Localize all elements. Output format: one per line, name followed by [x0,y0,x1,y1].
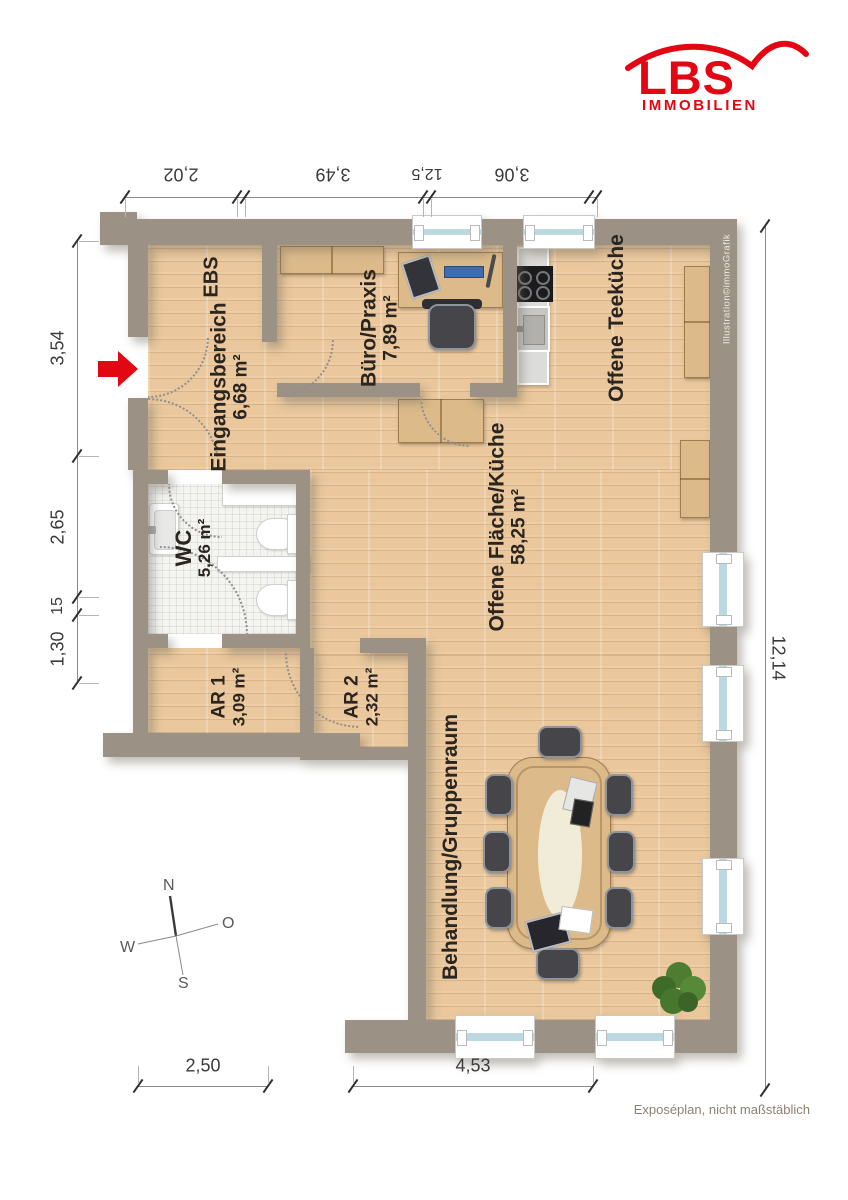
room-name: Büro/Praxis [359,269,381,387]
room-name: AR 1 [210,675,230,718]
wall-bottom [345,1020,737,1053]
room-area: 2,32 m² [364,668,382,727]
dim-value-bottom: 2,50 [185,1056,220,1077]
dim-value-left: 15 [49,597,67,615]
window [412,215,482,249]
compass-w: W [120,939,136,956]
arrow-head [118,351,138,387]
compass-o: O [222,915,234,932]
room-name: EBS [202,256,223,297]
room-area: 3,09 m² [231,668,249,727]
room-label-buero-praxis: Büro/Praxis 7,89 m² [359,269,402,387]
dim-value-top: 3,49 [315,164,350,185]
floorplan-page: LBS IMMOBILIEN [0,0,848,1200]
dim-value-left: 2,65 [48,509,69,544]
dim-ext [353,1066,354,1084]
room-name: Behandlung/Gruppenraum [440,714,462,980]
room-name: Eingangsbereich [209,302,231,471]
dim-line-top [125,197,597,198]
room-label-ar1: AR 1 3,09 m² [210,668,249,727]
arrow-shaft [98,361,118,377]
dim-ext [593,1066,594,1084]
dim-ext [125,199,126,217]
room-label-offene-flaeche: Offene Fläche/Küche 58,25 m² [487,423,530,632]
illustrator-credit: Illustration©immoGrafik [722,234,733,344]
window [523,215,595,249]
room-label-ebs: EBS [202,256,223,297]
dim-ext [268,1066,269,1084]
compass-rose: N O S W [118,858,238,988]
room-area: 7,89 m² [382,295,402,360]
room-label-teekueche: Offene Teeküche [606,234,628,402]
room-label-behandlung: Behandlung/Gruppenraum [440,714,462,980]
room-area: 5,26 m² [196,519,214,578]
dim-line-bottom [138,1086,268,1087]
compass-s: S [178,975,189,988]
dim-ext [597,199,598,217]
dim-line-left [77,241,78,683]
dim-ext [423,199,424,217]
dim-value-left: 1,30 [48,631,69,666]
dim-line-right [765,226,766,1090]
dim-ext [237,199,238,217]
dim-value-top: 12,5 [411,164,442,182]
dim-value-top: 3,06 [494,164,529,185]
dim-ext [79,456,99,457]
room-label-eingangsbereich: Eingangsbereich 6,68 m² [209,302,252,471]
window [455,1015,535,1059]
entrance-arrow-icon [96,350,140,388]
dim-value-left: 3,54 [48,330,69,365]
dim-value-bottom: 4,53 [455,1056,490,1077]
dim-ext [245,199,246,217]
room-name: WC [172,530,195,567]
room-name: AR 2 [343,675,363,718]
dim-line-bottom [353,1086,593,1087]
room-label-wc: WC 5,26 m² [172,519,214,578]
window [702,665,744,742]
dim-ext [79,597,99,598]
window [702,858,744,935]
window [595,1015,675,1059]
room-label-ar2: AR 2 2,32 m² [343,668,382,727]
room-name: Offene Teeküche [606,234,628,402]
dim-ext [431,199,432,217]
room-area: 6,68 m² [232,354,252,419]
dim-ext [79,241,99,242]
window [702,552,744,627]
footer-note: Exposéplan, nicht maßstäblich [634,1102,810,1117]
dim-value-right: 12,14 [768,635,789,680]
dim-ext [138,1066,139,1084]
dim-value-top: 2,02 [163,164,198,185]
compass-n: N [163,877,175,894]
dim-ext [79,615,99,616]
room-area: 58,25 m² [510,489,530,565]
dim-ext [79,683,99,684]
room-name: Offene Fläche/Küche [487,423,509,632]
